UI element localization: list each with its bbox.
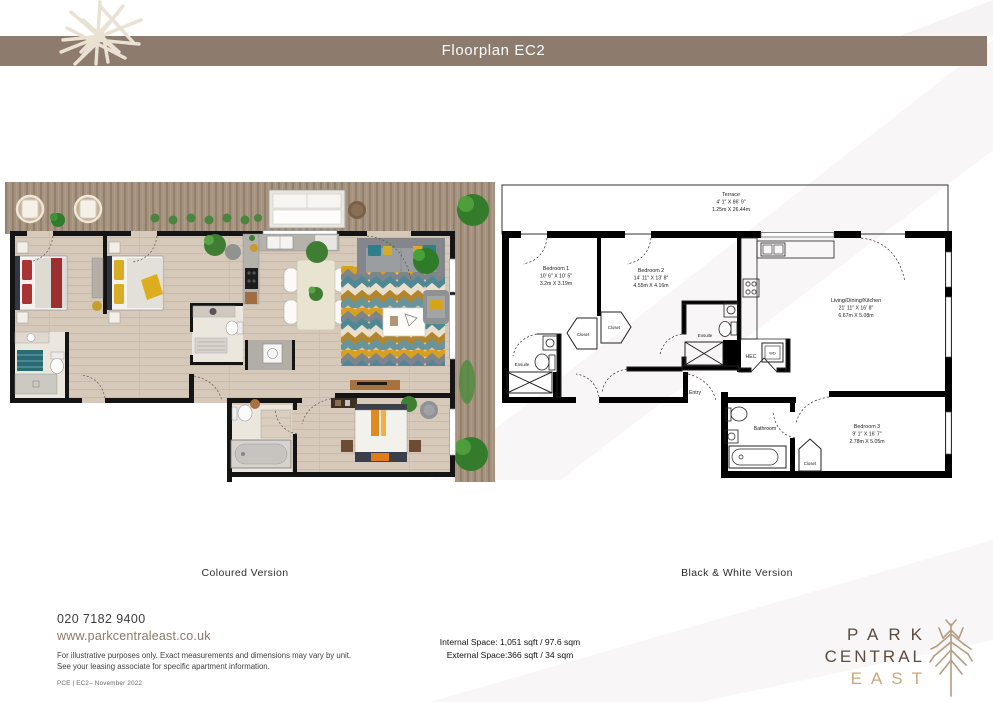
svg-text:9' 1" X 16' 7": 9' 1" X 16' 7" xyxy=(852,432,881,438)
svg-text:4' 1" X 86' 9": 4' 1" X 86' 9" xyxy=(716,200,745,206)
page-title: Floorplan EC2 xyxy=(0,36,987,66)
svg-text:21' 11" X 16' 8": 21' 11" X 16' 8" xyxy=(839,306,874,312)
website-link[interactable]: www.parkcentraleast.co.uk xyxy=(57,629,397,643)
entry-label: Entry xyxy=(689,390,702,396)
svg-text:14' 11" X 13' 8": 14' 11" X 13' 8" xyxy=(634,276,669,282)
branch-logo-icon xyxy=(53,0,148,72)
floorplan-page: Floorplan EC2 xyxy=(0,0,993,702)
svg-text:2.78m X 5.05m: 2.78m X 5.05m xyxy=(849,439,884,445)
brand-line-east: EAST xyxy=(792,668,931,690)
phone-number: 020 7182 9400 xyxy=(57,612,397,626)
wd-label: WD xyxy=(769,351,776,356)
svg-text:10' 6" X 10' 5": 10' 6" X 10' 5" xyxy=(540,274,572,280)
bedroom1-label: Bedroom 1 xyxy=(543,266,569,272)
bw-version-caption: Black & White Version xyxy=(637,567,837,579)
brand-line-central: CENTRAL xyxy=(792,646,925,668)
bedroom2-label: Bedroom 2 xyxy=(638,268,664,274)
terrace-label: Terrace xyxy=(722,192,740,198)
bathroom-label: Bathroom xyxy=(754,426,777,432)
brand-line-park: PARK xyxy=(792,624,932,646)
header-bar: Floorplan EC2 xyxy=(0,36,987,66)
disclaimer-text: For illustrative purposes only. Exact me… xyxy=(57,650,397,673)
area-summary: Internal Space: 1,051 sqft / 97.6 sqm Ex… xyxy=(390,636,630,662)
svg-text:3.2m X 3.19m: 3.2m X 3.19m xyxy=(540,281,572,287)
ensuite2-label: Ensuite xyxy=(698,333,713,338)
svg-text:6.67m X 5.08m: 6.67m X 5.08m xyxy=(838,313,873,319)
ensuite1-label: Ensuite xyxy=(515,362,530,367)
hec-room xyxy=(248,340,292,370)
coloured-version-caption: Coloured Version xyxy=(145,567,345,579)
internal-space: Internal Space: 1,051 sqft / 97.6 sqm xyxy=(390,636,630,649)
hec-label: HEC xyxy=(746,354,757,360)
floorplan-coloured xyxy=(5,182,495,482)
tree-logo-icon xyxy=(924,616,978,700)
bw-door-arcs xyxy=(513,238,905,438)
svg-text:1.25m X 26.44m: 1.25m X 26.44m xyxy=(712,207,750,213)
closet-bed3-label: Closet xyxy=(804,461,817,466)
svg-text:4.55m X 4.16m: 4.55m X 4.16m xyxy=(633,283,668,289)
bedroom3-label: Bedroom 3 xyxy=(854,424,880,430)
brand-wordmark: PARK CENTRAL EAST xyxy=(792,624,922,690)
living-label: Living/Dining/Kitchen xyxy=(831,298,881,304)
external-space: External Space:366 sqft / 34 sqm xyxy=(390,649,630,662)
document-reference: PCE | EC2– November 2022 xyxy=(57,680,397,687)
closet-hall-a-label: Closet xyxy=(577,332,590,337)
footer-contact-block: 020 7182 9400 www.parkcentraleast.co.uk … xyxy=(57,612,397,687)
floorplan-bw: Terrace 4' 1" X 86' 9" 1.25m X 26.44m Be… xyxy=(499,182,955,478)
closet-hall-b-label: Closet xyxy=(608,325,621,330)
